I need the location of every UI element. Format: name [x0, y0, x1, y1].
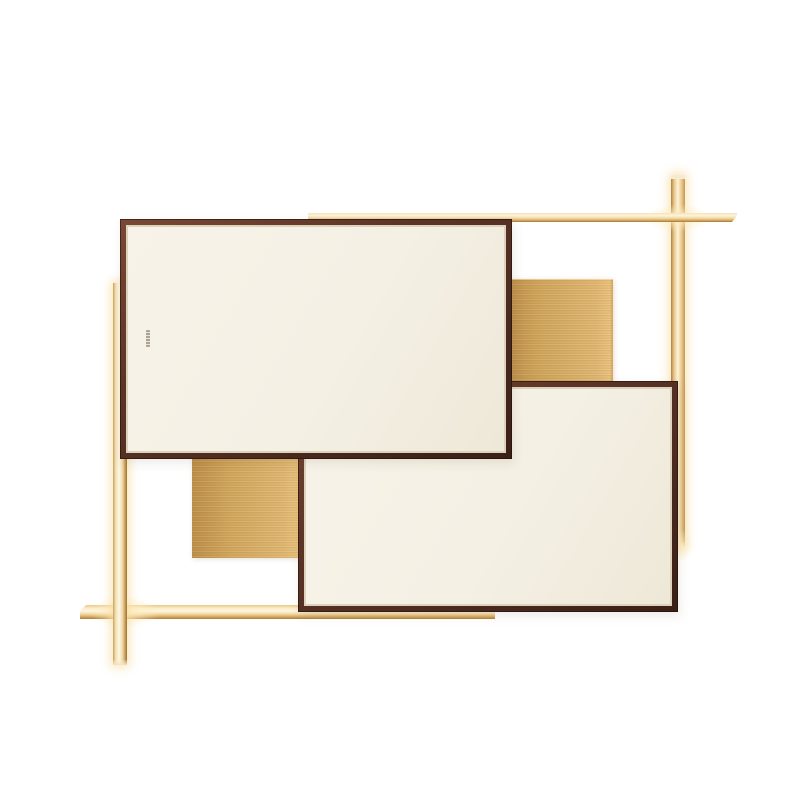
brass-square-lower-left — [192, 446, 301, 558]
panel-upper-left — [120, 219, 512, 459]
product-photo-wall-lamp — [0, 0, 800, 800]
panel-upper-face — [128, 227, 504, 451]
brass-square-upper-right — [505, 279, 613, 385]
brand-mark — [146, 330, 150, 347]
